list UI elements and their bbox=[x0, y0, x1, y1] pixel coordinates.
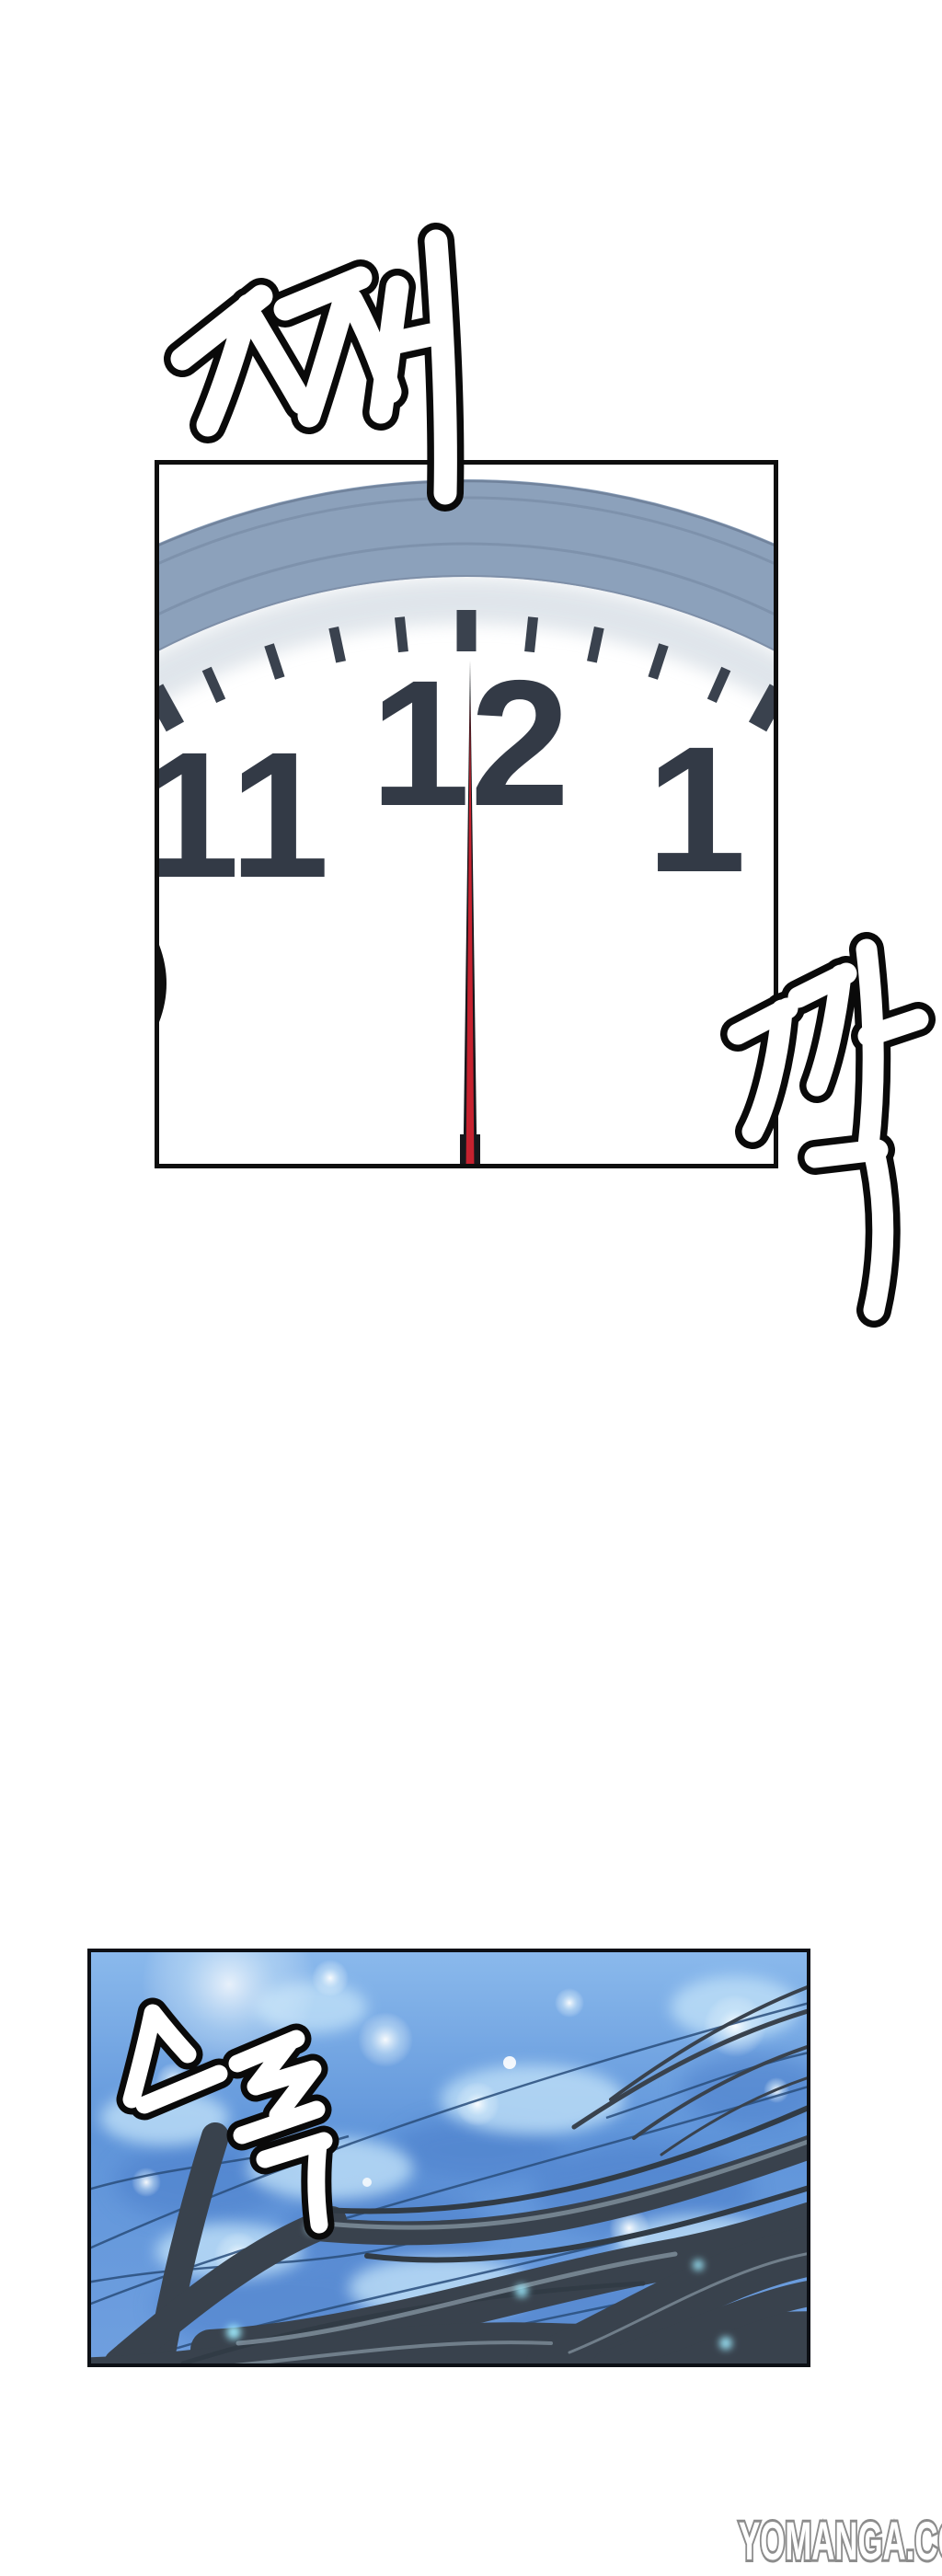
watermark: YOMANGA.CO bbox=[739, 2513, 942, 2571]
water-panel bbox=[87, 1949, 810, 2367]
clock-panel: 11 12 1 bbox=[155, 460, 778, 1168]
watermark-text: YOMANGA.CO bbox=[739, 2513, 942, 2571]
clock-number-1: 1 bbox=[647, 709, 746, 910]
clock-numbers: 11 12 1 bbox=[159, 643, 746, 915]
comic-page: 11 12 1 bbox=[0, 0, 942, 2576]
clock-number-11: 11 bbox=[159, 715, 329, 915]
water-illustration bbox=[91, 1952, 807, 2363]
sfx-jjae bbox=[182, 241, 445, 493]
clock-illustration: 11 12 1 bbox=[159, 465, 774, 1164]
left-border-shape bbox=[159, 945, 167, 1022]
